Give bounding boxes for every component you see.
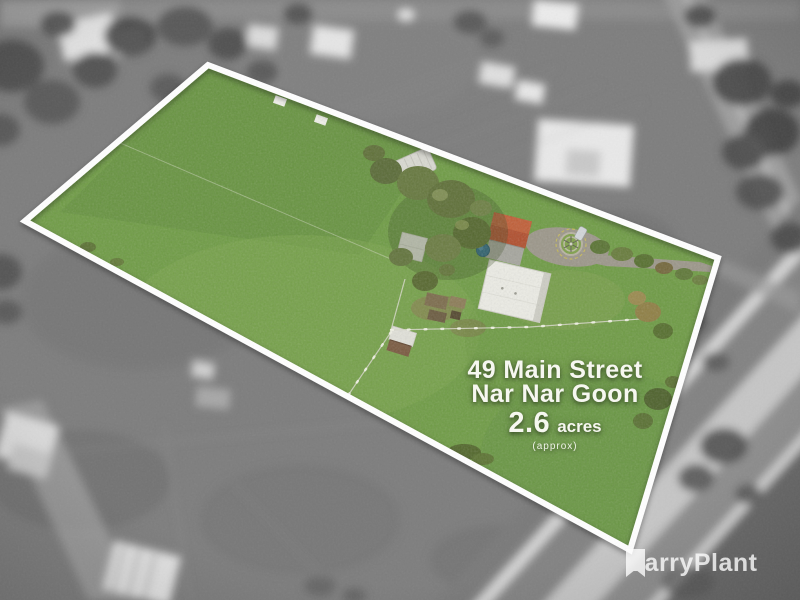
property-overlay-text: 49 Main Street Nar Nar Goon 2.6acres (ap… [430,358,680,452]
land-area: 2.6acres [430,411,680,440]
land-area-value: 2.6 [508,407,550,439]
aerial-scene [0,0,800,600]
agency-name: BarryPlant [626,549,757,577]
property-listing-photo: 49 Main Street Nar Nar Goon 2.6acres (ap… [0,0,800,600]
address-line-2: Nar Nar Goon [430,382,680,406]
barry-plant-bookmark-icon [626,549,645,577]
land-area-qualifier: (approx) [430,441,680,452]
photo-grain [0,0,800,600]
address-line-1: 49 Main Street [430,358,680,382]
land-area-unit: acres [557,417,601,436]
agency-logo: BarryPlant [626,549,757,577]
